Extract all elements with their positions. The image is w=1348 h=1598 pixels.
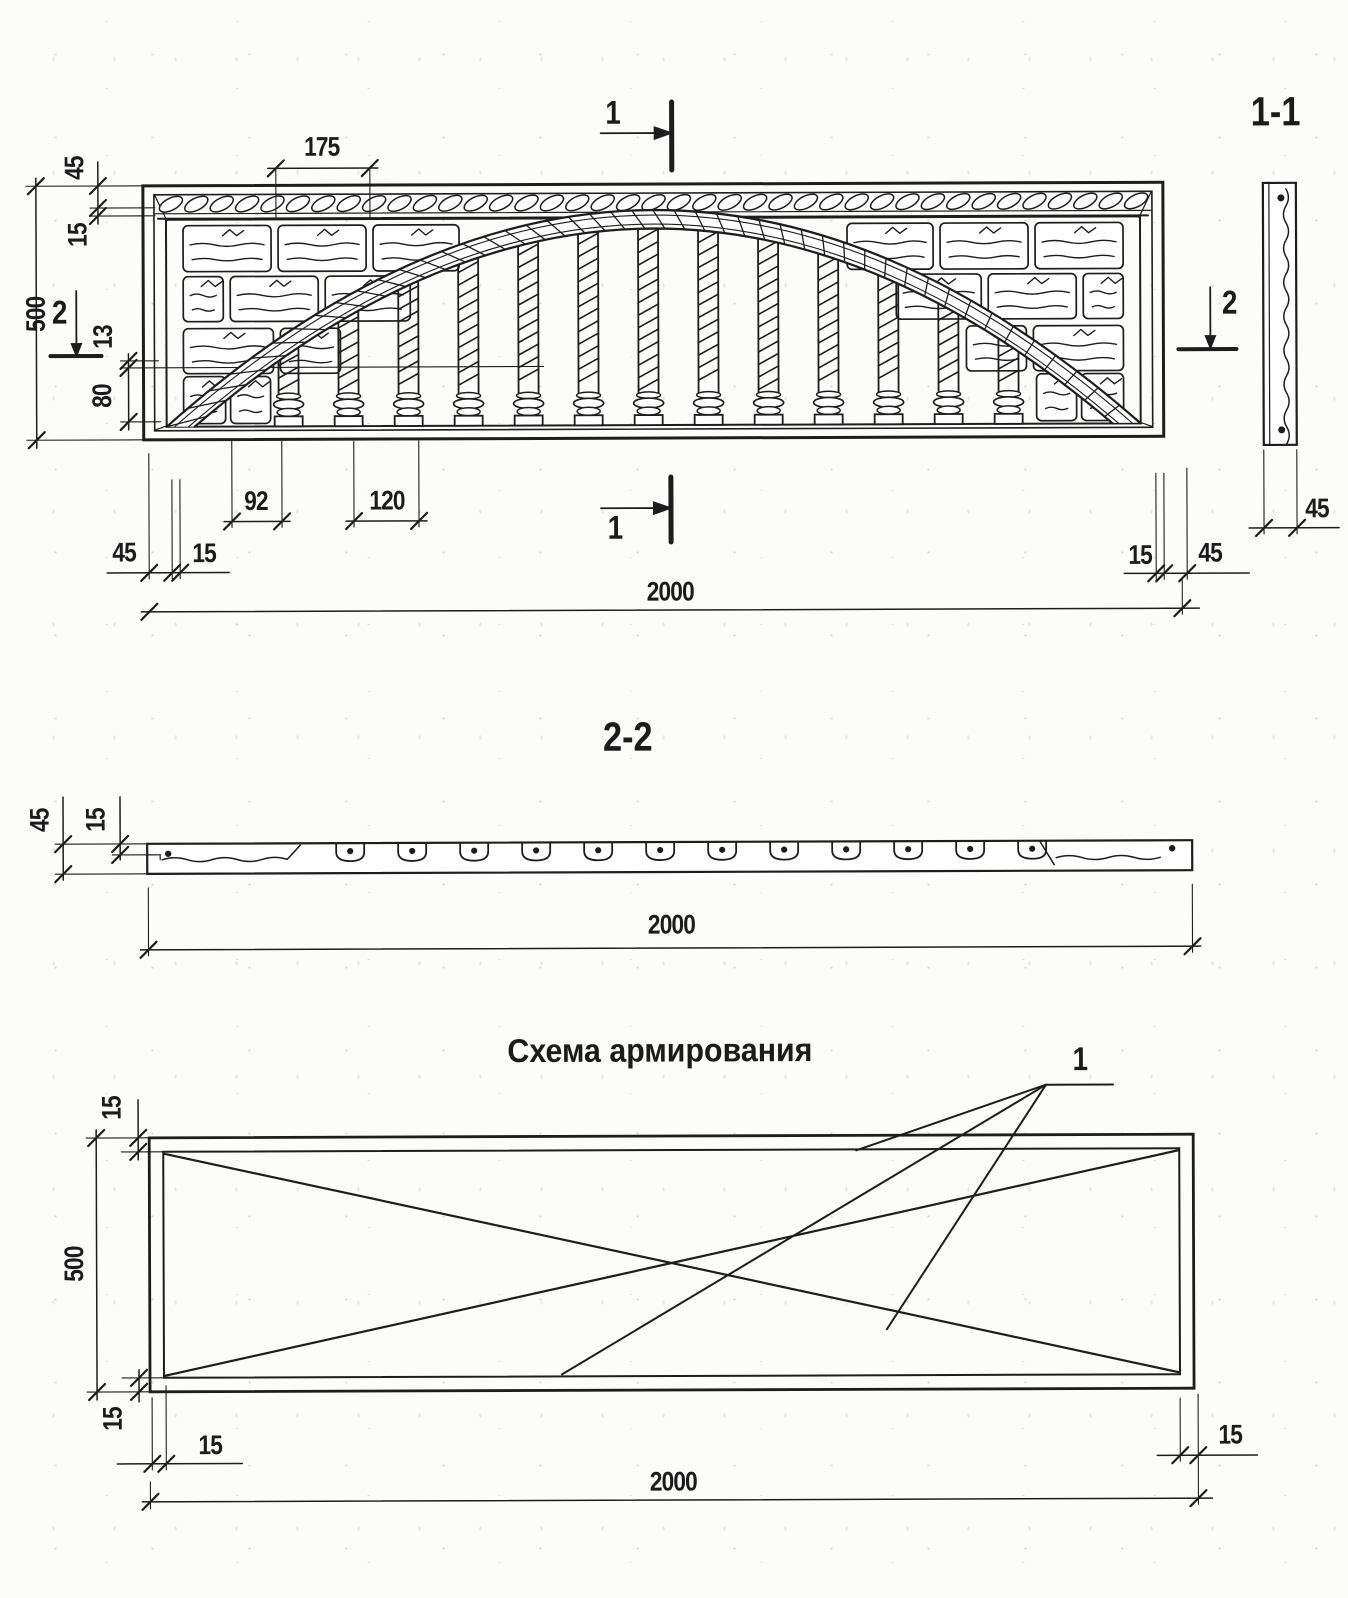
drawing-linework <box>0 0 1348 1598</box>
dim-13-label: 13 <box>90 325 117 349</box>
rebar-scheme-view <box>149 1084 1194 1392</box>
dim-92-label: 92 <box>244 488 268 515</box>
dim-175-label: 175 <box>304 134 339 161</box>
scan-content: 1 175 1-1 45 15 500 2 13 80 92 120 45 15… <box>0 0 1348 1598</box>
dim-15-scheme-top-label: 15 <box>99 1096 126 1120</box>
section-2-2-view <box>147 840 1192 874</box>
section-2-2-title: 2-2 <box>603 717 653 758</box>
dim-45-bottom-left-label: 45 <box>112 539 136 566</box>
section-mark-2-right-label: 2 <box>1222 286 1237 319</box>
dim-120-label: 120 <box>369 487 404 514</box>
dim-15-scheme-right-label: 15 <box>1218 1422 1242 1449</box>
section-mark-1-top-label: 1 <box>605 96 620 129</box>
dim-15-scheme-bottom-label: 15 <box>100 1407 127 1431</box>
drawing-sheet: 1 175 1-1 45 15 500 2 13 80 92 120 45 15… <box>0 0 1348 1598</box>
dim-2000-elevation-label: 2000 <box>647 578 694 605</box>
dim-15-bottom-left-label: 15 <box>192 540 216 567</box>
dim-2000-s22-label: 2000 <box>648 911 695 938</box>
dim-15-bottom-right-label: 15 <box>1128 542 1152 569</box>
section-mark-2-left-label: 2 <box>52 296 67 329</box>
rebar-position-label: 1 <box>1073 1042 1088 1075</box>
section-mark-1-bottom-label: 1 <box>608 511 623 544</box>
dim-15-s22-label: 15 <box>83 808 110 832</box>
dim-15-scheme-left-label: 15 <box>198 1432 222 1459</box>
dim-500-scheme-label: 500 <box>61 1246 88 1281</box>
section-1-1-view <box>1263 183 1297 445</box>
dim-45-s22-label: 45 <box>27 808 54 832</box>
dim-15-top-left-label: 15 <box>64 223 91 247</box>
elevation-view <box>120 182 1164 440</box>
dim-500-label: 500 <box>23 297 50 332</box>
section-1-1-title: 1-1 <box>1251 91 1301 132</box>
dim-45-top-left-label: 45 <box>61 156 88 180</box>
dim-45-bottom-right-label: 45 <box>1198 540 1222 567</box>
dim-2000-scheme-label: 2000 <box>650 1468 697 1495</box>
scheme-title: Схема армирования <box>507 1033 812 1067</box>
dim-80-label: 80 <box>89 384 116 408</box>
dim-45-section11-label: 45 <box>1305 495 1329 522</box>
